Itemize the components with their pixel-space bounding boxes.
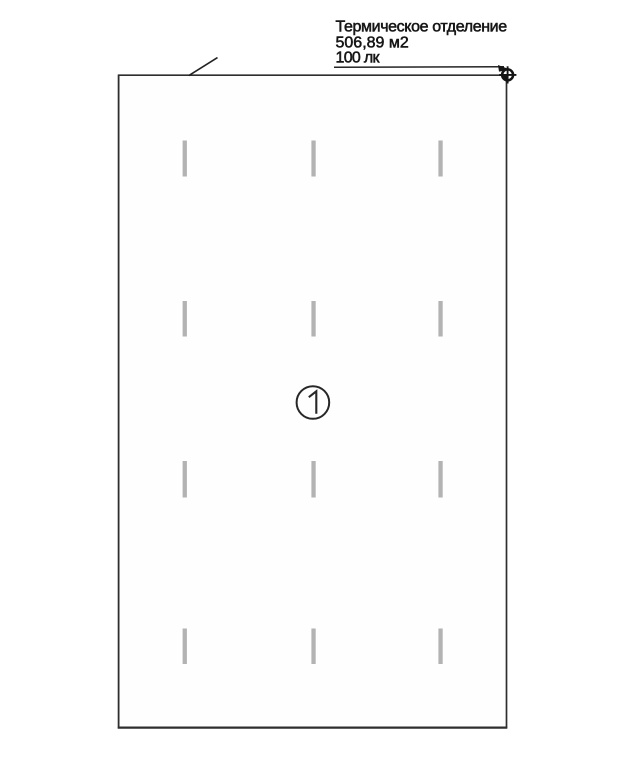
svg-text:Термическое отделение: Термическое отделение	[336, 18, 508, 35]
svg-text:100 лк: 100 лк	[336, 50, 381, 67]
